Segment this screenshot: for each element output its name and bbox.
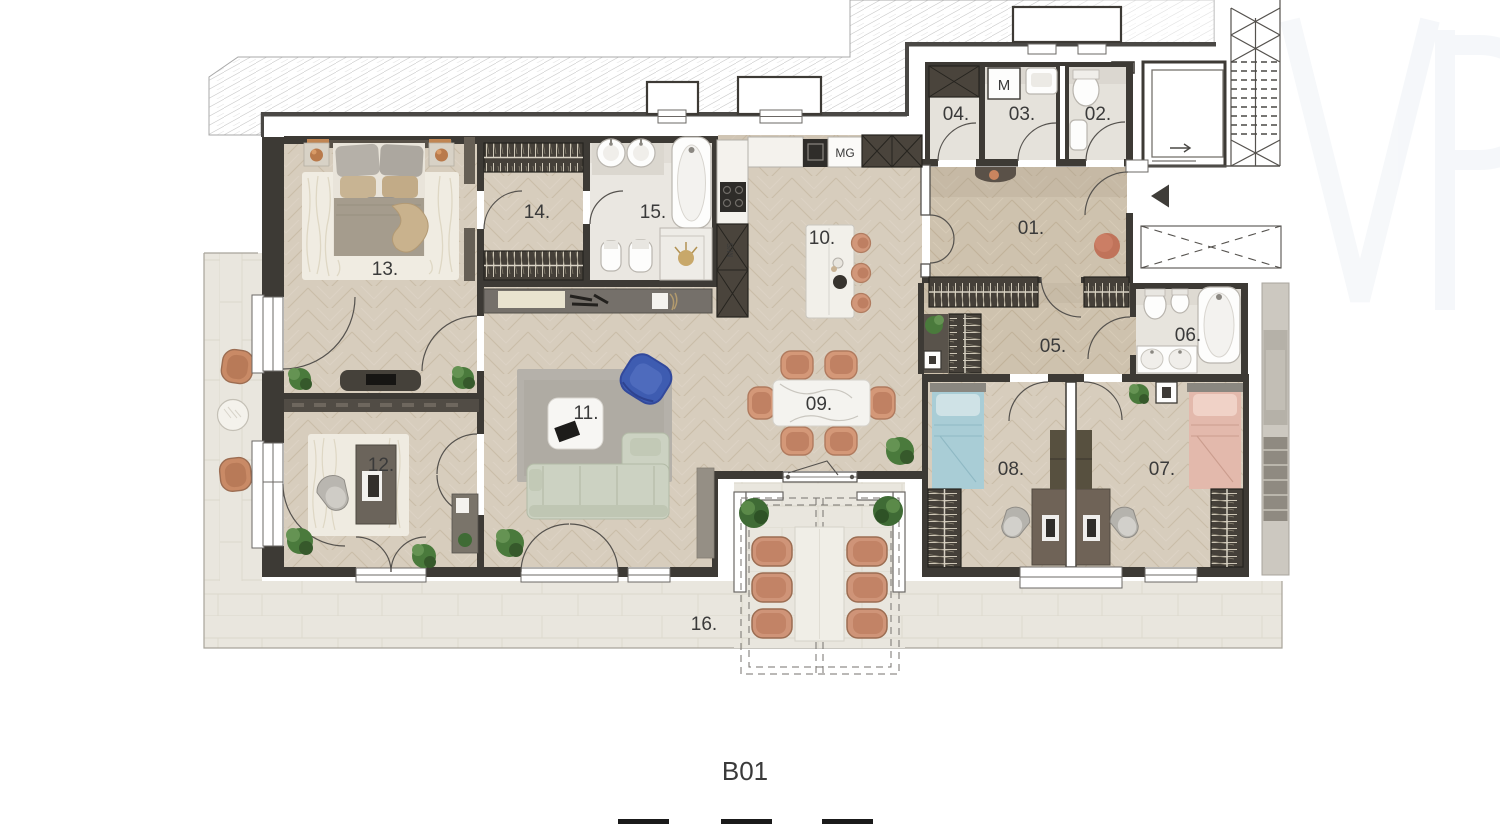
svg-text:11.: 11. — [573, 403, 598, 424]
svg-text:07.: 07. — [1149, 459, 1175, 480]
svg-text:MG: MG — [835, 146, 854, 160]
svg-text:09.: 09. — [806, 394, 832, 415]
svg-text:03.: 03. — [1009, 104, 1035, 125]
svg-text:B01: B01 — [722, 756, 768, 786]
svg-text:01.: 01. — [1018, 218, 1044, 239]
svg-text:10.: 10. — [809, 228, 835, 249]
svg-text:13.: 13. — [372, 259, 398, 280]
svg-text:02.: 02. — [1085, 104, 1111, 125]
svg-text:M: M — [998, 77, 1011, 94]
svg-text:14.: 14. — [524, 202, 550, 223]
svg-text:08.: 08. — [998, 459, 1024, 480]
svg-text:15.: 15. — [640, 202, 666, 223]
svg-text:04.: 04. — [943, 104, 969, 125]
svg-text:M/S: M/S — [726, 243, 735, 257]
svg-text:16.: 16. — [691, 614, 717, 635]
svg-text:06.: 06. — [1175, 325, 1201, 346]
svg-text:12.: 12. — [368, 455, 394, 476]
svg-text:05.: 05. — [1040, 336, 1066, 357]
